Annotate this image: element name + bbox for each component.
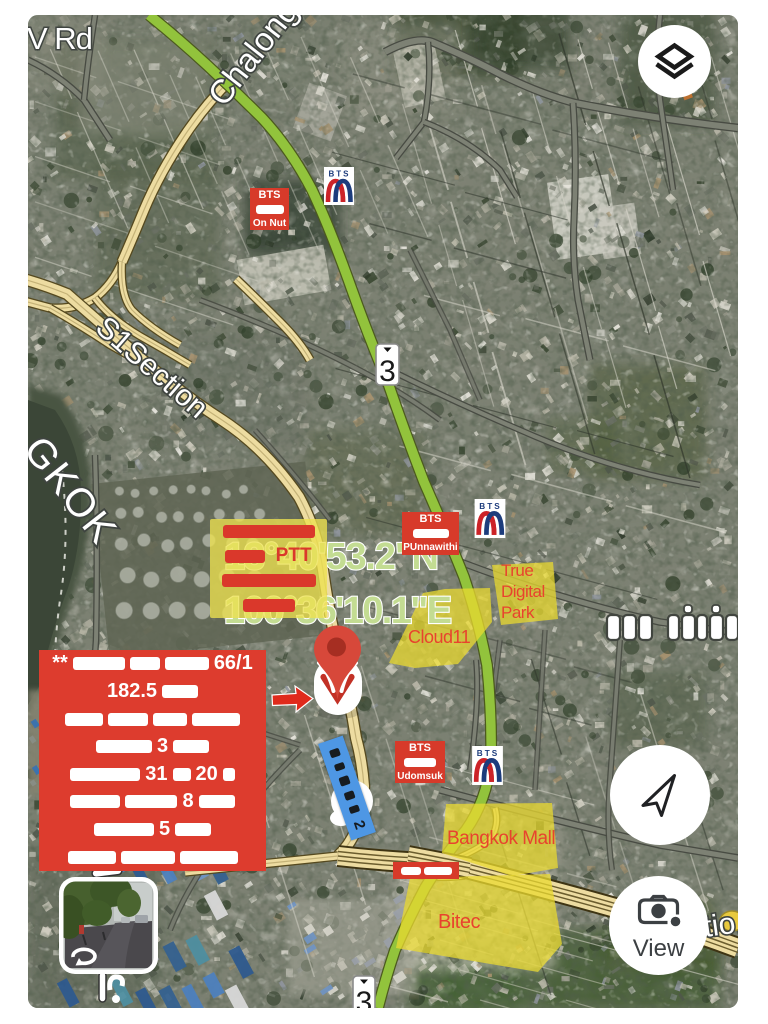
- svg-text:BTS: BTS: [329, 170, 351, 179]
- svg-text:View: View: [633, 935, 685, 962]
- svg-text:BTS: BTS: [477, 749, 500, 758]
- svg-text:BTS: BTS: [479, 502, 502, 511]
- svg-text:V Rd: V Rd: [28, 21, 92, 56]
- svg-text:3: 3: [379, 355, 396, 388]
- svg-text:3: 3: [356, 986, 373, 1008]
